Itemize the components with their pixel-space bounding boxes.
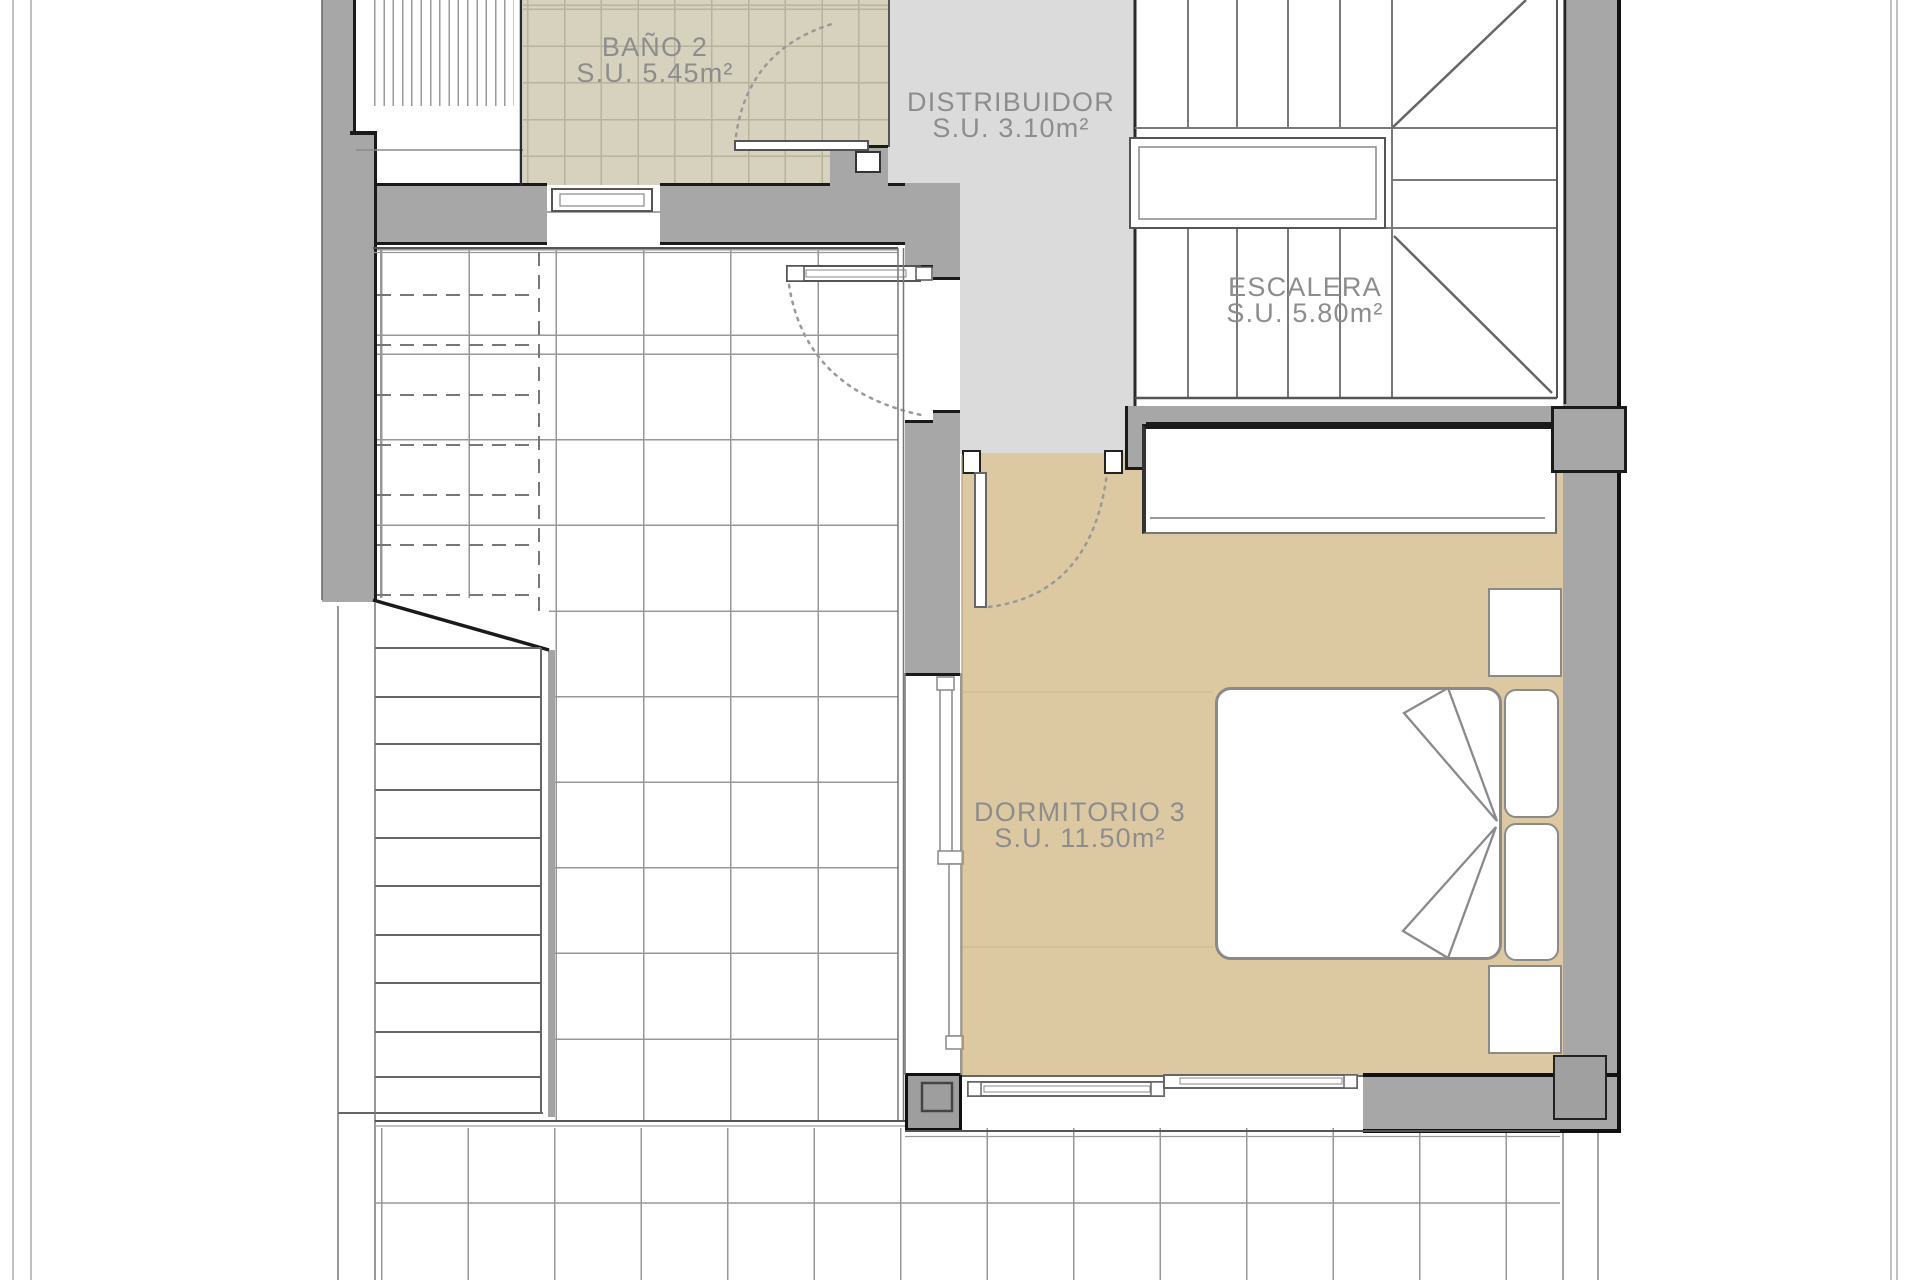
room-area: S.U. 3.10m²	[907, 115, 1115, 141]
room-name: DORMITORIO 3	[974, 799, 1186, 825]
nightstand-south	[1488, 965, 1562, 1054]
wall-terrace-east-lower	[905, 420, 960, 676]
bedroom-window-strip	[905, 673, 962, 1075]
bed	[1215, 687, 1502, 960]
pier-northeast	[1551, 406, 1627, 473]
distribuidor-floor-lower	[960, 242, 1135, 454]
room-name: BAÑO 2	[576, 34, 733, 60]
exterior-stairs-area	[373, 598, 549, 1122]
wall-terrace-east-upper	[905, 183, 960, 268]
stairs-terrace-divider	[548, 650, 555, 1117]
lower-terrace-tiles	[375, 1128, 1560, 1280]
wall-bedroom-north	[1125, 406, 1563, 425]
room-name: DISTRIBUIDOR	[907, 89, 1115, 115]
wall-step-edge	[350, 131, 377, 135]
wall-terrace-east-step2	[933, 410, 960, 425]
pillow-bottom	[1504, 823, 1559, 961]
room-name: ESCALERA	[1226, 274, 1383, 300]
wardrobe-inner-line	[1150, 517, 1545, 519]
room-label-escalera: ESCALERA S.U. 5.80m²	[1226, 274, 1383, 326]
pillow-top	[1504, 689, 1559, 818]
bedroom-south-window	[962, 1075, 1363, 1096]
stair-landing	[1130, 138, 1385, 228]
room-area: S.U. 5.80m²	[1226, 300, 1383, 326]
stair-direction-line-up	[1392, 0, 1526, 128]
room-label-distribuidor: DISTRIBUIDOR S.U. 3.10m²	[907, 89, 1115, 141]
wall-bath-southeast	[830, 145, 888, 188]
wall-bath-south-b	[660, 183, 920, 245]
wall-terrace-east-step	[933, 265, 960, 280]
staircase	[1130, 0, 1565, 406]
wall-west-lower	[322, 133, 377, 602]
room-area: S.U. 5.45m²	[576, 60, 733, 86]
nightstand-north	[1488, 588, 1562, 677]
floor-plan: BAÑO 2 S.U. 5.45m² DISTRIBUIDOR S.U. 3.1…	[0, 0, 1920, 1280]
room-area: S.U. 11.50m²	[974, 825, 1186, 851]
bath-door-gap	[547, 185, 660, 245]
radiator-hatch	[374, 0, 514, 106]
stair-direction-line-down	[1394, 236, 1552, 393]
room-label-bano2: BAÑO 2 S.U. 5.45m²	[576, 34, 733, 86]
wall-east	[1563, 0, 1621, 1133]
pier-southeast	[1553, 1055, 1607, 1120]
room-label-dormitorio3: DORMITORIO 3 S.U. 11.50m²	[974, 799, 1186, 851]
wall-bath-south-a	[377, 183, 547, 245]
wall-west-upper	[322, 0, 356, 137]
pillar	[905, 1073, 962, 1131]
